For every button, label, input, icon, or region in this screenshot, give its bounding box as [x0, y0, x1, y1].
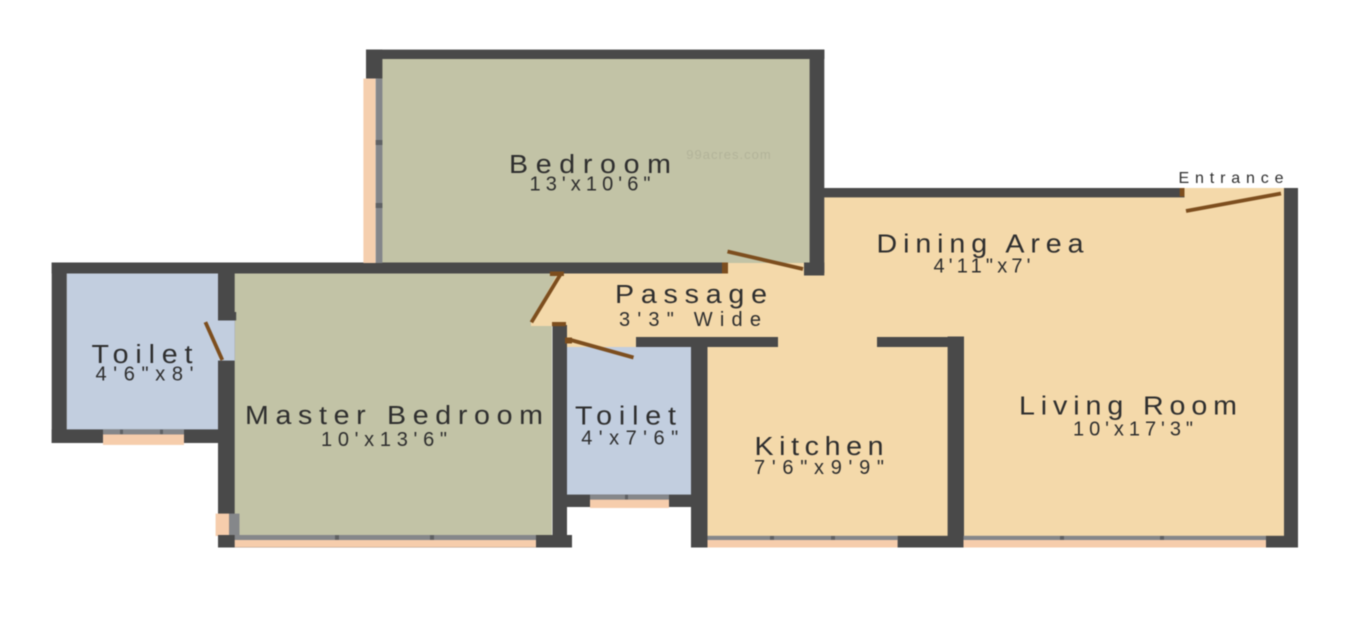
svg-text:Dining Area: Dining Area [877, 229, 1085, 258]
svg-text:7'6"x9'9": 7'6"x9'9" [754, 457, 884, 479]
svg-text:99acres.com: 99acres.com [686, 147, 771, 162]
svg-text:Master Bedroom: Master Bedroom [245, 400, 543, 429]
svg-text:13'x10'6": 13'x10'6" [530, 174, 651, 196]
svg-text:Entrance: Entrance [1179, 170, 1284, 187]
svg-text:10'x17'3": 10'x17'3" [1073, 419, 1193, 441]
svg-text:10'x13'6": 10'x13'6" [321, 429, 447, 451]
